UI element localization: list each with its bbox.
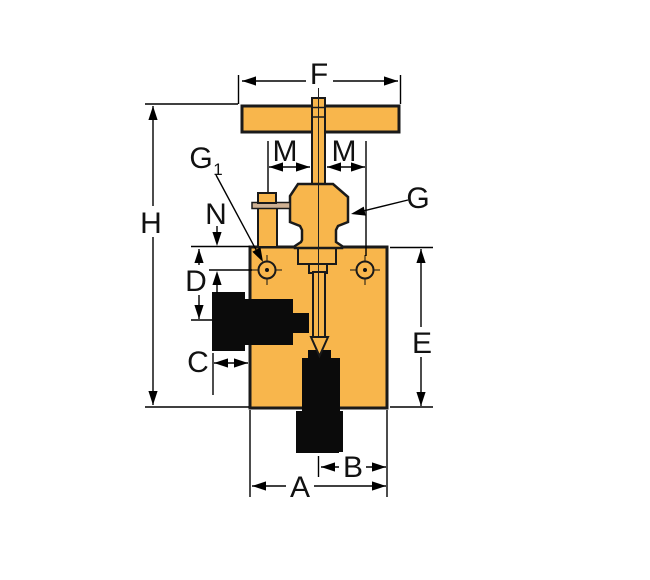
label-D: D: [185, 265, 207, 298]
label-M-right: M: [332, 135, 357, 168]
bleed-cap: [258, 193, 276, 203]
outlet-fitting: [296, 350, 343, 453]
label-C: C: [187, 346, 209, 379]
label-G: G: [406, 182, 429, 215]
label-M-left: M: [273, 135, 298, 168]
label-A: A: [290, 471, 310, 504]
label-G1: G: [189, 142, 212, 175]
label-E: E: [412, 327, 432, 360]
label-H: H: [140, 207, 162, 240]
label-B: B: [343, 451, 363, 484]
valve-dimension-drawing: F M M G G 1 N H D C E B A: [0, 0, 650, 580]
label-F: F: [310, 58, 328, 91]
packing-gland: [298, 247, 336, 264]
label-G1-sub: 1: [213, 160, 222, 179]
bleed-stem: [258, 208, 277, 247]
drawing-canvas: F M M G G 1 N H D C E B A: [0, 0, 650, 580]
label-N: N: [205, 198, 227, 231]
